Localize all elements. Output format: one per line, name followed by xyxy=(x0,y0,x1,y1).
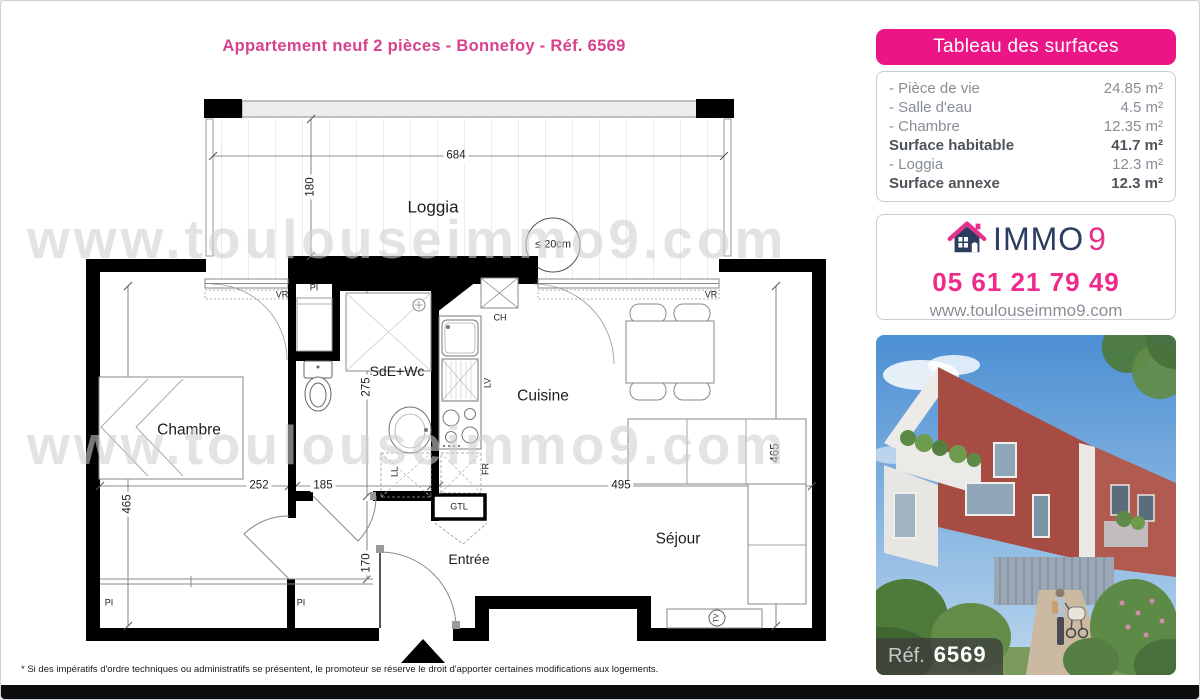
surfaces-table: - Pièce de vie 24.85 m² - Salle d'eau 4.… xyxy=(876,71,1176,202)
surface-row-total-annexe: Surface annexe 12.3 m² xyxy=(889,174,1163,193)
page-title: Appartement neuf 2 pièces - Bonnefoy - R… xyxy=(1,37,847,56)
room-label-chambre: Chambre xyxy=(157,422,221,438)
fr-label: FR xyxy=(482,463,491,475)
agency-logo: IMMO9 xyxy=(945,216,1107,263)
building-photo: Réf. 6569 xyxy=(876,335,1176,675)
vr-right-label: VR xyxy=(705,291,718,300)
surface-value: 41.7 m² xyxy=(1111,136,1163,155)
gtl-label: GTL xyxy=(450,503,468,512)
surface-value: 4.5 m² xyxy=(1120,98,1163,117)
ref-badge: Réf. 6569 xyxy=(876,638,1003,675)
floor-plan-drawing xyxy=(86,96,826,671)
floor-plan: 684 180 Loggia ≤ 20cm VR VR PI CH SdE+Wc… xyxy=(86,96,826,671)
ref-label: Réf. xyxy=(888,645,925,668)
surface-label: - Pièce de vie xyxy=(889,79,980,98)
footnote: * Si des impératifs d'ordre techniques o… xyxy=(21,664,658,675)
tv-label: TV xyxy=(714,614,721,623)
flyer-page: Appartement neuf 2 pièces - Bonnefoy - R… xyxy=(0,0,1200,700)
height-note: ≤ 20cm xyxy=(535,240,571,251)
surface-label: Surface habitable xyxy=(889,136,1014,155)
room-label-cuisine: Cuisine xyxy=(517,388,569,404)
brand-9: 9 xyxy=(1088,221,1107,258)
dim-252: 252 xyxy=(246,480,271,492)
room-label-sde: SdE+Wc xyxy=(370,364,425,378)
bottom-bar xyxy=(1,685,1199,699)
surface-label: - Salle d'eau xyxy=(889,98,972,117)
house-icon xyxy=(945,216,989,263)
dim-185: 185 xyxy=(310,480,335,492)
dim-465-right: 465 xyxy=(770,440,782,465)
right-column: Tableau des surfaces - Pièce de vie 24.8… xyxy=(876,29,1176,675)
dim-170: 170 xyxy=(361,550,373,575)
pi-top-label: PI xyxy=(310,284,319,293)
dim-180: 180 xyxy=(305,174,317,199)
room-label-entree: Entrée xyxy=(448,552,489,566)
building-render xyxy=(876,335,1176,675)
surface-label: - Chambre xyxy=(889,117,960,136)
dim-465-left: 465 xyxy=(122,491,134,516)
ll-label: LL xyxy=(391,467,400,477)
ch-label: CH xyxy=(494,314,507,323)
dim-275: 275 xyxy=(361,374,373,399)
brand-immo: IMMO xyxy=(993,221,1084,258)
agency-website: www.toulouseimmo9.com xyxy=(930,301,1123,321)
dim-495: 495 xyxy=(608,480,633,492)
agency-phone: 05 61 21 79 49 xyxy=(932,267,1120,298)
pi-mid-label: PI xyxy=(297,599,306,608)
pi-left-label: PI xyxy=(105,599,114,608)
ref-number: 6569 xyxy=(934,642,987,668)
surface-value: 12.3 m² xyxy=(1111,174,1163,193)
surface-label: Surface annexe xyxy=(889,174,1000,193)
surface-row-total-habitable: Surface habitable 41.7 m² xyxy=(889,136,1163,155)
surfaces-header: Tableau des surfaces xyxy=(876,29,1176,65)
surface-row: - Chambre 12.35 m² xyxy=(889,117,1163,136)
surface-value: 24.85 m² xyxy=(1104,79,1163,98)
surface-value: 12.3 m² xyxy=(1112,155,1163,174)
surface-row: - Salle d'eau 4.5 m² xyxy=(889,98,1163,117)
surface-row: - Pièce de vie 24.85 m² xyxy=(889,79,1163,98)
lv-label: LV xyxy=(484,378,493,388)
dim-684: 684 xyxy=(443,150,468,162)
room-label-loggia: Loggia xyxy=(407,199,458,216)
surface-row: - Loggia 12.3 m² xyxy=(889,155,1163,174)
room-label-sejour: Séjour xyxy=(656,531,701,547)
surface-label: - Loggia xyxy=(889,155,943,174)
surface-value: 12.35 m² xyxy=(1104,117,1163,136)
agency-card: IMMO9 05 61 21 79 49 www.toulouseimmo9.c… xyxy=(876,214,1176,320)
vr-left-label: VR xyxy=(276,291,289,300)
